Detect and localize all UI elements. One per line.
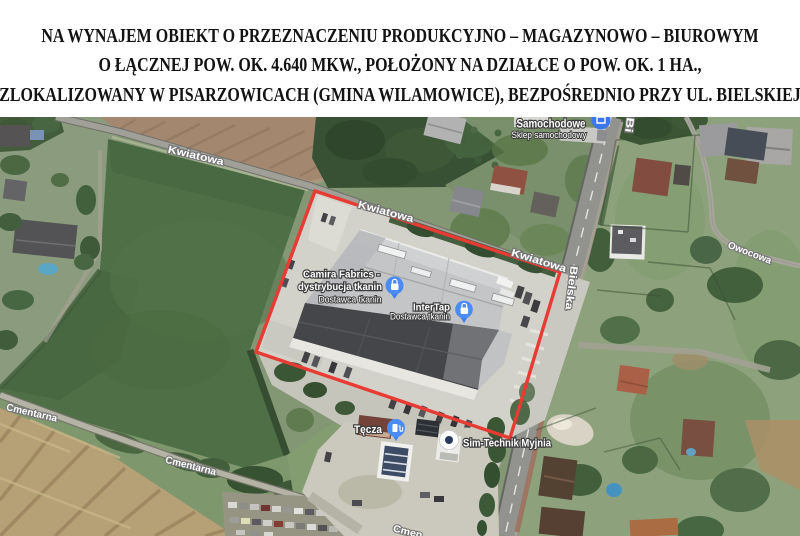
svg-text:Sim-Technik Myjnia: Sim-Technik Myjnia xyxy=(463,438,552,450)
svg-text:Camira Fabrics -: Camira Fabrics - xyxy=(303,269,380,281)
svg-text:Samochodowe: Samochodowe xyxy=(517,119,586,131)
svg-text:Dostawca tkanin: Dostawca tkanin xyxy=(390,312,450,322)
svg-text:Tęcza: Tęcza xyxy=(354,424,383,436)
svg-text:Sklep samochodowy: Sklep samochodowy xyxy=(512,130,587,141)
svg-text:Bi: Bi xyxy=(622,117,636,133)
svg-text:dystrybucja tkanin: dystrybucja tkanin xyxy=(298,281,382,293)
svg-text:Dostawca tkanin: Dostawca tkanin xyxy=(319,295,382,305)
